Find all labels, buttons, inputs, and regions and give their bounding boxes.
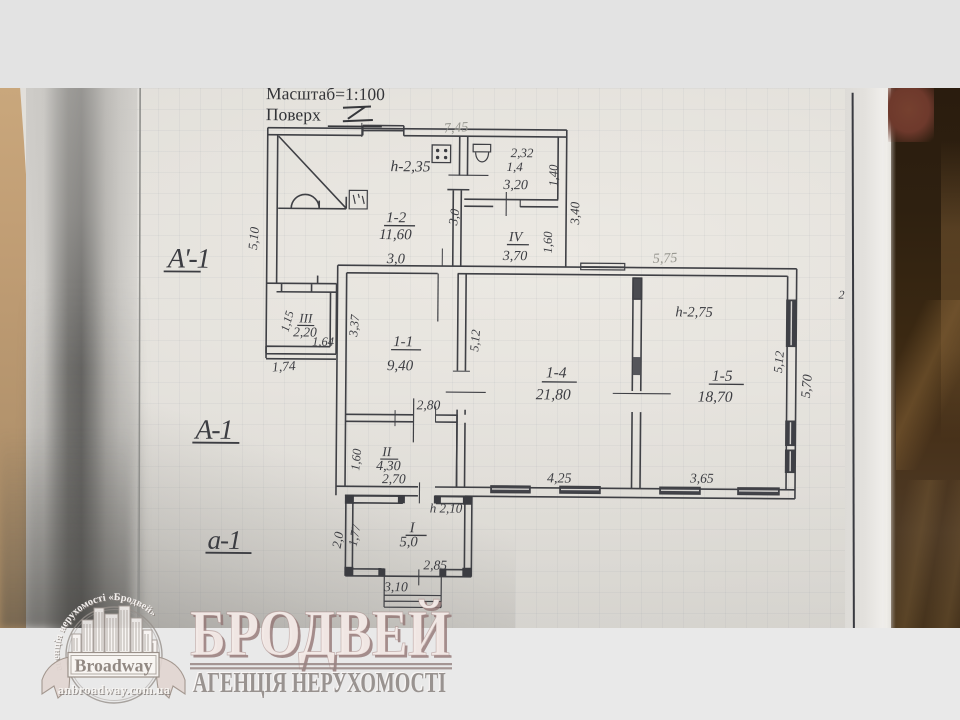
svg-text:Broadway: Broadway xyxy=(75,656,153,676)
svg-text:anbroadway.com.ua: anbroadway.com.ua xyxy=(58,683,171,697)
svg-text:БРОДВЕЙ: БРОДВЕЙ xyxy=(190,597,450,670)
svg-text:АГЕНЦІЯ НЕРУХОМОСТІ: АГЕНЦІЯ НЕРУХОМОСТІ xyxy=(193,667,446,699)
